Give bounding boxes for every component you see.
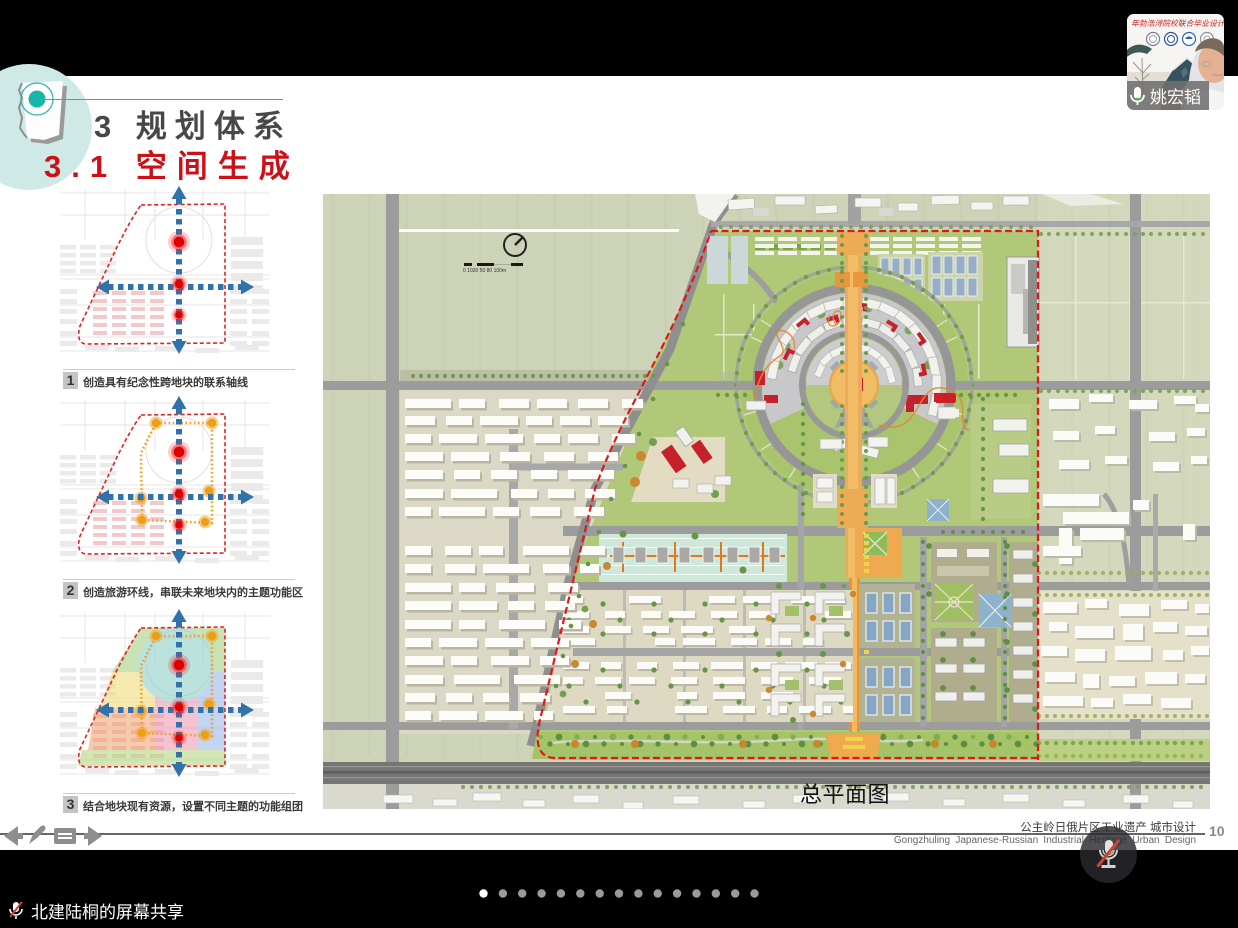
svg-text:年勃浩浔院校联合毕业设计答辩: 年勃浩浔院校联合毕业设计答辩: [1131, 19, 1224, 28]
svg-text:总平面图: 总平面图: [800, 782, 890, 807]
svg-text:0 1020 50 80 100m: 0 1020 50 80 100m: [463, 268, 506, 274]
